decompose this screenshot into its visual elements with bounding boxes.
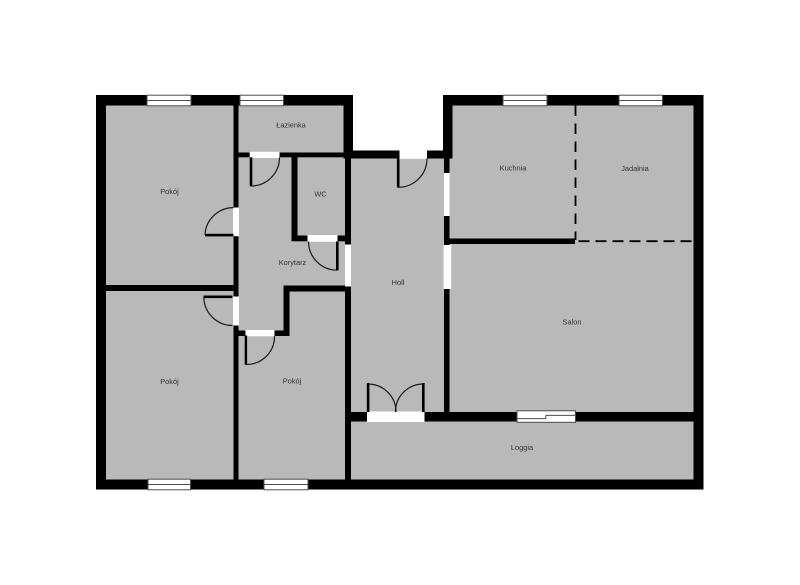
svg-text:Salon: Salon [563,318,582,327]
svg-text:WC: WC [314,190,327,199]
svg-text:Kuchnia: Kuchnia [500,164,528,173]
svg-text:Pokój: Pokój [160,377,179,386]
svg-text:Łazienka: Łazienka [276,121,306,130]
svg-text:Loggia: Loggia [511,443,534,452]
svg-text:Pokój: Pokój [160,187,179,196]
svg-text:Pokój: Pokój [283,377,302,386]
svg-text:Holl: Holl [392,278,405,287]
svg-text:Korytarz: Korytarz [279,258,307,267]
svg-text:Jadalnia: Jadalnia [621,164,649,173]
